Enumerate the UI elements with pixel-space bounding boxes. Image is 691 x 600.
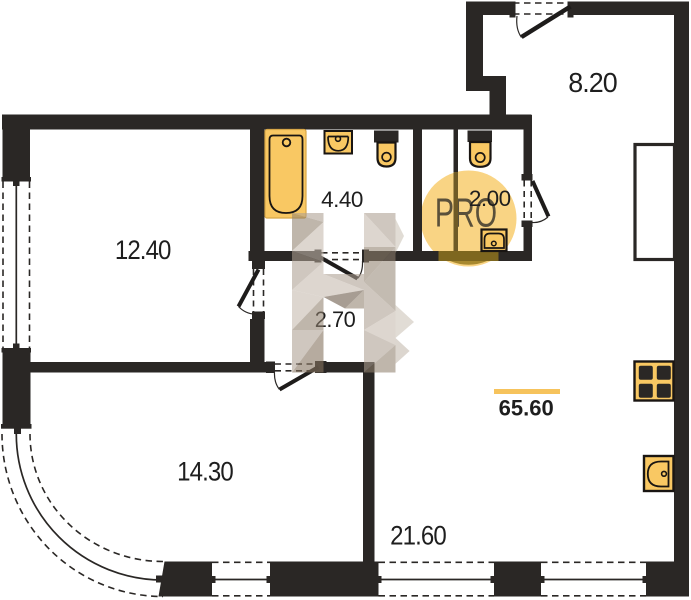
svg-text:12.40: 12.40 <box>115 236 171 266</box>
svg-text:14.30: 14.30 <box>177 457 233 487</box>
svg-text:65.60: 65.60 <box>499 396 554 421</box>
svg-text:8.20: 8.20 <box>568 66 617 98</box>
svg-text:21.60: 21.60 <box>390 521 446 551</box>
svg-text:2.00: 2.00 <box>469 186 511 211</box>
svg-text:4.40: 4.40 <box>321 187 363 212</box>
